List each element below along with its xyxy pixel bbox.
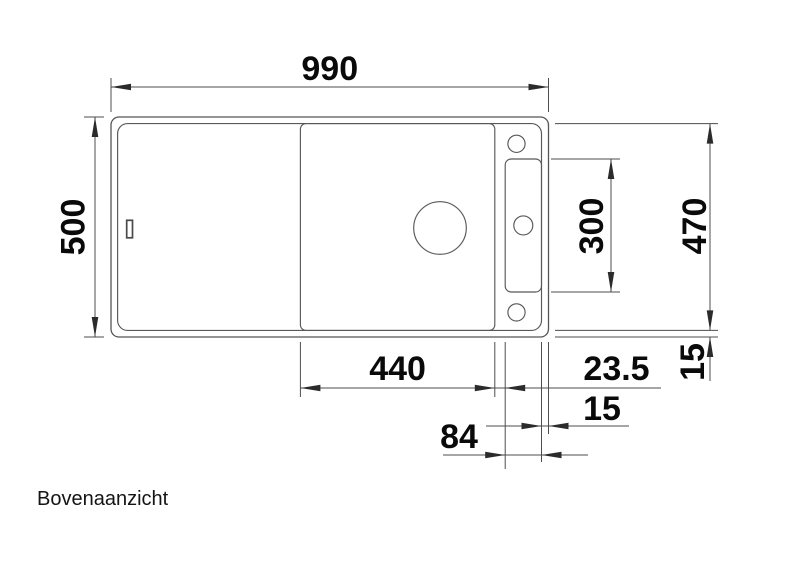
arrowhead-top	[608, 159, 615, 179]
accessory-hole-top	[508, 135, 525, 152]
sink-outer-edge	[111, 117, 549, 337]
drainer-grip-notch	[127, 220, 133, 238]
arrowhead-bottom	[92, 317, 99, 337]
arrowhead-bottom	[608, 272, 615, 292]
dim-rim-offset-bottom-label: 15	[583, 390, 621, 428]
arrowhead-left	[522, 423, 542, 430]
drain-circle	[414, 202, 467, 255]
tap-panel-outline	[505, 159, 541, 292]
bowl-outline	[300, 124, 494, 331]
dim-tap-panel-width-label: 84	[440, 418, 478, 456]
dimension-overall-width: 990	[111, 50, 549, 112]
dim-bowl-to-panel-gap-label: 23.5	[583, 350, 649, 388]
sink-top-view-drawing: 990 500 470 15 300	[0, 0, 800, 561]
technical-drawing-page: 990 500 470 15 300	[0, 0, 800, 561]
dim-overall-depth-label: 500	[55, 199, 93, 256]
tap-hole	[514, 216, 533, 235]
view-caption: Bovenaanzicht	[37, 488, 169, 510]
arrowhead-right	[529, 84, 549, 91]
dim-inner-rim-depth-label: 470	[676, 198, 714, 255]
arrowhead-left	[300, 385, 320, 392]
dimension-overall-depth: 500	[55, 117, 105, 337]
dimension-tap-panel-length: 300	[551, 159, 620, 292]
arrowhead-right	[549, 423, 569, 430]
arrowhead-top	[92, 117, 99, 137]
arrowhead-top	[707, 124, 714, 144]
arrowhead-left	[485, 452, 505, 459]
dim-overall-width-label: 990	[301, 50, 358, 88]
arrowhead-gap	[505, 385, 525, 392]
arrowhead-right	[542, 452, 562, 459]
sink-inner-rim	[118, 124, 542, 331]
arrowhead-right	[475, 385, 495, 392]
arrowhead-left	[111, 84, 131, 91]
dim-rim-offset-right-label: 15	[674, 343, 712, 381]
arrowhead-bottom	[707, 310, 714, 330]
dim-bowl-width-label: 440	[369, 350, 426, 388]
accessory-hole-bottom	[508, 304, 525, 321]
sink-body	[111, 117, 549, 337]
dim-tap-panel-length-label: 300	[573, 198, 611, 255]
